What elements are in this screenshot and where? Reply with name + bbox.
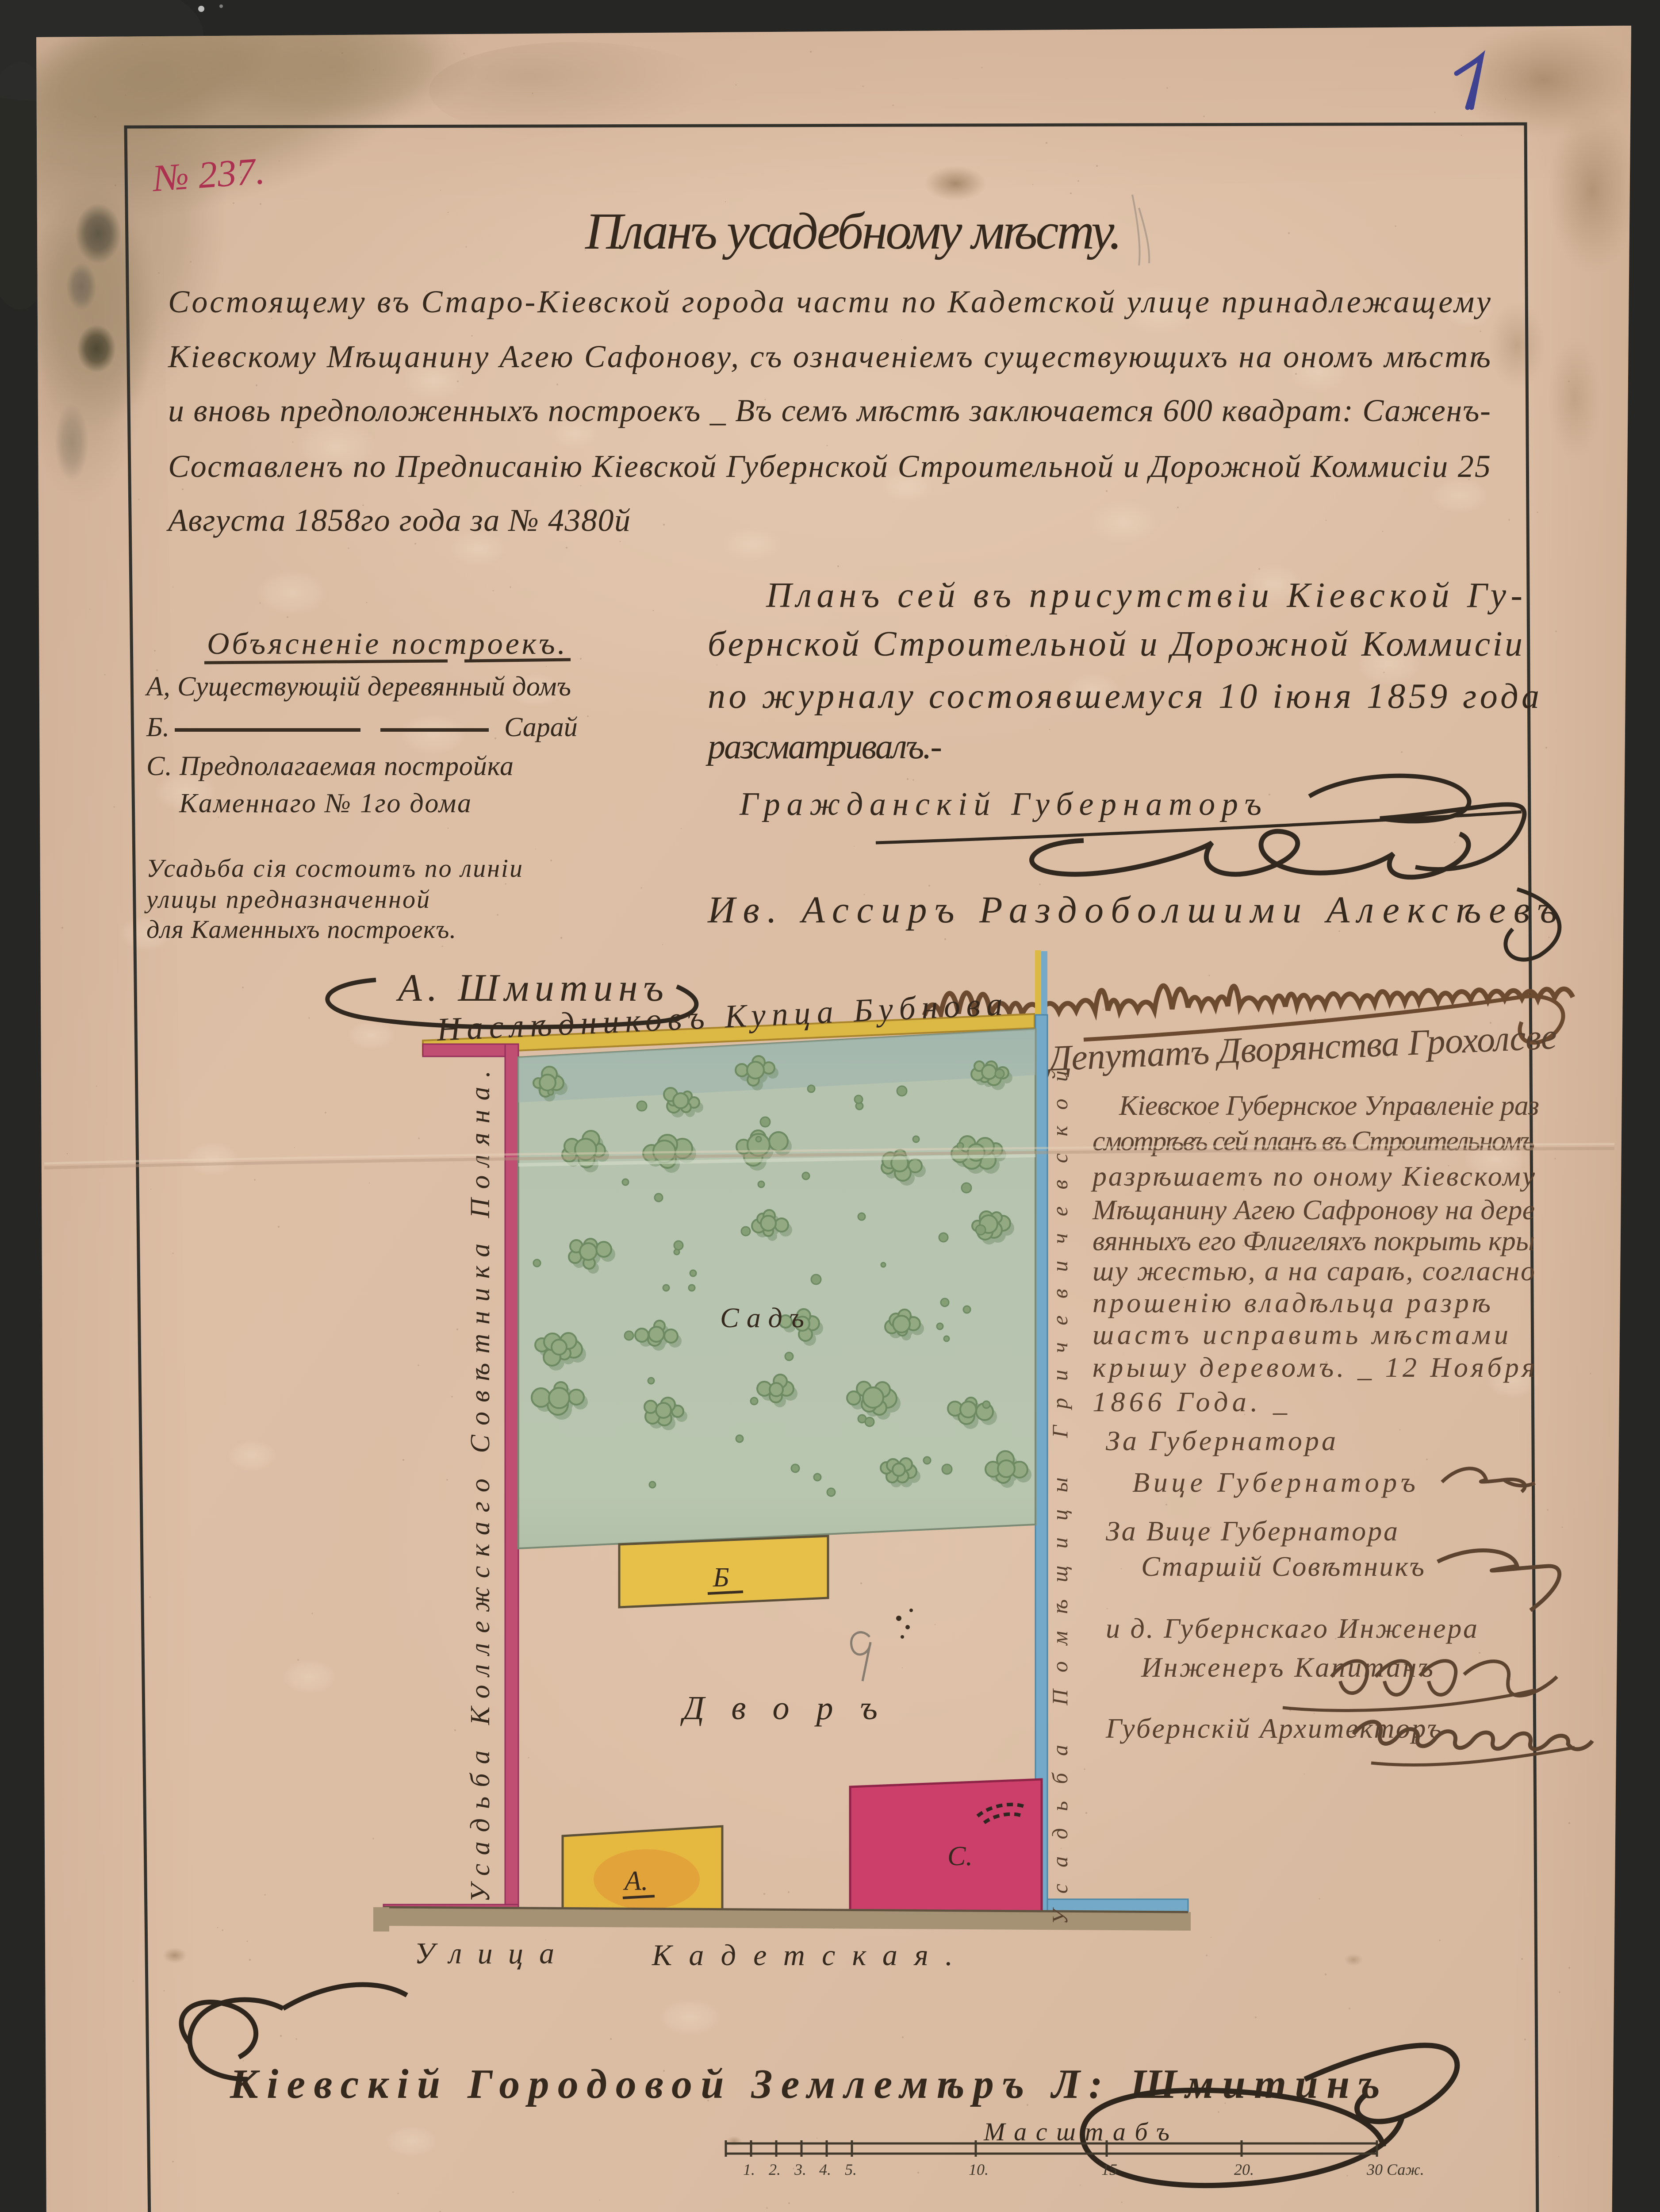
svg-text:Вице Губернаторъ: Вице Губернаторъ [1132, 1467, 1415, 1498]
svg-text:Усадьба сія состоитъ по линіи: Усадьба сія состоитъ по линіи [146, 854, 522, 883]
svg-text:Планъ сей въ присутствіи Кіевс: Планъ сей въ присутствіи Кіевской Гу- [766, 576, 1522, 615]
svg-text:бернской Строительной и Дорожн: бернской Строительной и Дорожной Коммисі… [708, 625, 1522, 664]
svg-text:1.: 1. [743, 2161, 755, 2178]
svg-text:4.: 4. [819, 2161, 831, 2178]
svg-text:для Каменныхъ построекъ.: для Каменныхъ построекъ. [146, 915, 456, 944]
svg-text:Сарай: Сарай [504, 712, 578, 742]
svg-text:шу жестью, а на сараѣ, согласн: шу жестью, а на сараѣ, согласно [1093, 1255, 1535, 1286]
svg-text:разрѣшаетъ по оному Кіевскому: разрѣшаетъ по оному Кіевскому [1091, 1160, 1535, 1192]
svg-text:разсматривалъ.-: разсматривалъ.- [705, 727, 942, 766]
svg-text:15: 15 [1101, 2161, 1117, 2178]
svg-text:Кіевскому Мѣщанину Агею Сафоно: Кіевскому Мѣщанину Агею Сафонову, съ озн… [168, 339, 1491, 374]
svg-text:Губернскій Архитекторъ: Губернскій Архитекторъ [1105, 1713, 1442, 1744]
svg-text:С.: С. [947, 1841, 973, 1871]
svg-text:А, Существующій деревянный дом: А, Существующій деревянный домъ [145, 672, 571, 702]
svg-text:прошенію владѣльца разрѣ: прошенію владѣльца разрѣ [1093, 1287, 1491, 1318]
svg-text:3.: 3. [794, 2161, 806, 2178]
svg-text:20.: 20. [1234, 2161, 1254, 2178]
svg-text:30 Саж.: 30 Саж. [1366, 2161, 1424, 2178]
svg-text:За Губернатора: За Губернатора [1106, 1425, 1336, 1456]
svg-text:5.: 5. [845, 2161, 857, 2178]
svg-text:2.: 2. [769, 2161, 781, 2178]
svg-text:вянныхъ его Флигеляхъ покрыть: вянныхъ его Флигеляхъ покрыть кры [1093, 1225, 1535, 1256]
svg-text:Составленъ по Предписанію Кіев: Составленъ по Предписанію Кіевской Губер… [168, 449, 1491, 484]
svg-text:А.: А. [623, 1866, 648, 1896]
svg-text:10.: 10. [969, 2161, 989, 2178]
svg-text:и вновь предположенныхъ постро: и вновь предположенныхъ построекъ _ Въ с… [168, 393, 1491, 428]
svg-text:Гражданскій Губернаторъ: Гражданскій Губернаторъ [739, 786, 1261, 822]
svg-text:Планъ усадебному мѣсту.: Планъ усадебному мѣсту. [585, 202, 1122, 260]
svg-text:Б.: Б. [146, 712, 169, 742]
svg-text:Инженеръ Капитанъ: Инженеръ Капитанъ [1141, 1651, 1433, 1683]
svg-text:и д. Губернскаго Инженера: и д. Губернскаго Инженера [1106, 1613, 1477, 1644]
svg-text:Объясненіе построекъ.: Объясненіе построекъ. [207, 627, 565, 661]
svg-text:С. Предполагаемая постройка: С. Предполагаемая постройка [146, 751, 514, 781]
svg-text:Б: Б [713, 1563, 729, 1593]
svg-text:Кадетская.: Кадетская. [652, 1938, 966, 1972]
svg-text:по журналу состоявшемуся 10 ію: по журналу состоявшемуся 10 іюня 1859 го… [708, 677, 1539, 716]
svg-text:Августа 1858го года за № 4380й: Августа 1858го года за № 4380й [166, 503, 630, 538]
svg-text:улицы предназначенной: улицы предназначенной [144, 885, 429, 914]
svg-text:Мѣщанину Агею Сафронову на дер: Мѣщанину Агею Сафронову на дере [1092, 1194, 1535, 1225]
svg-text:№ 237.: № 237. [150, 150, 266, 200]
svg-text:Кіевское Губернское Управленіе: Кіевское Губернское Управленіе раз [1119, 1090, 1539, 1121]
svg-text:За Вице Губернатора: За Вице Губернатора [1106, 1515, 1398, 1547]
svg-text:Каменнаго № 1го дома: Каменнаго № 1го дома [179, 788, 471, 818]
svg-text:шастъ исправить мѣстами: шастъ исправить мѣстами [1093, 1319, 1508, 1350]
